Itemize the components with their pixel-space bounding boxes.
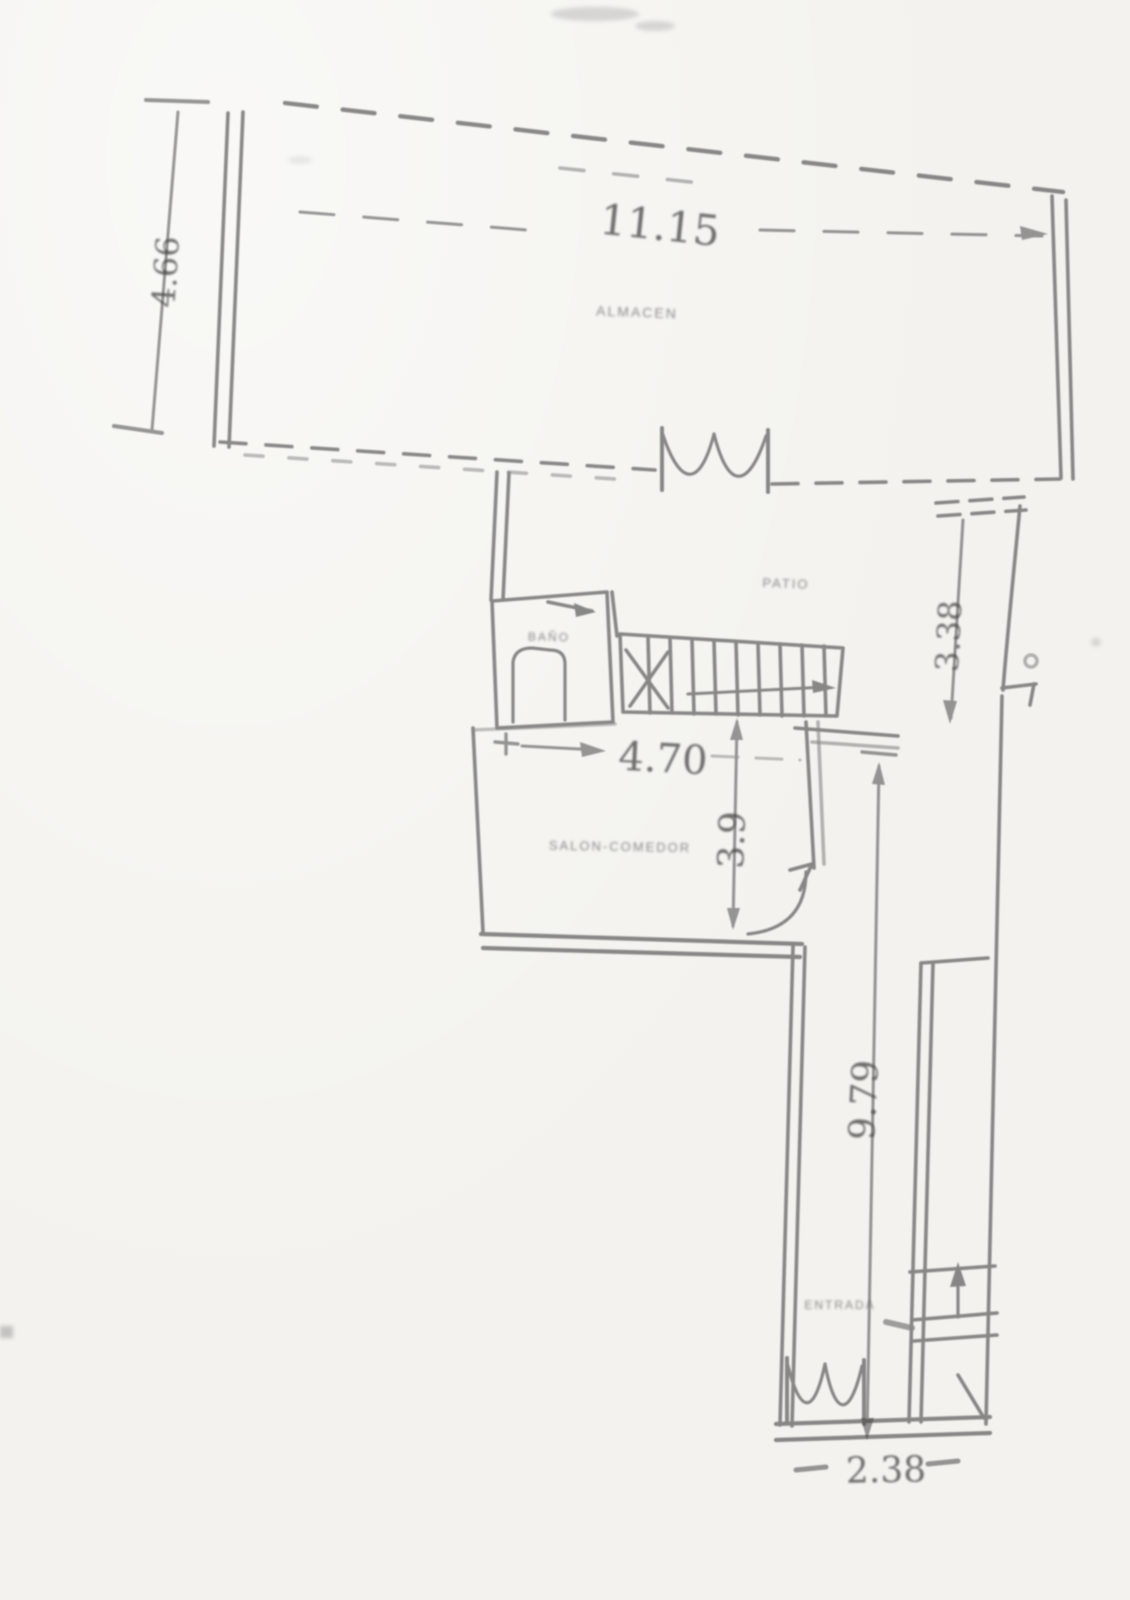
room-labels-layer: ALMACEN PATIO BAÑO SALON-COMEDOR ENTRADA <box>528 303 876 1312</box>
room-label-top: ALMACEN <box>596 303 678 322</box>
floor-plan-sheet: 11.15 4.66 3.38 4.70 3.9 9.79 2.38 ALMAC… <box>0 0 1130 1600</box>
dim-entrance-width: 2.38 <box>846 1449 927 1491</box>
dimension-lines-layer <box>114 100 1048 1470</box>
room-label-bath: BAÑO <box>528 630 570 645</box>
dim-salon-height: 3.9 <box>711 811 754 870</box>
dim-left-height: 4.66 <box>145 235 188 309</box>
dim-upper-right-height: 3.38 <box>928 599 970 672</box>
dim-top-width: 11.15 <box>598 195 723 256</box>
dim-middle-width: 4.70 <box>617 734 708 785</box>
dim-corridor-height: 9.79 <box>842 1059 887 1141</box>
room-label-salon: SALON-COMEDOR <box>549 838 692 855</box>
room-label-patio: PATIO <box>762 575 810 592</box>
floor-plan-drawing: 11.15 4.66 3.38 4.70 3.9 9.79 2.38 ALMAC… <box>0 0 1130 1600</box>
scan-noise <box>0 7 1101 1338</box>
room-label-entrance: ENTRADA <box>804 1298 875 1312</box>
